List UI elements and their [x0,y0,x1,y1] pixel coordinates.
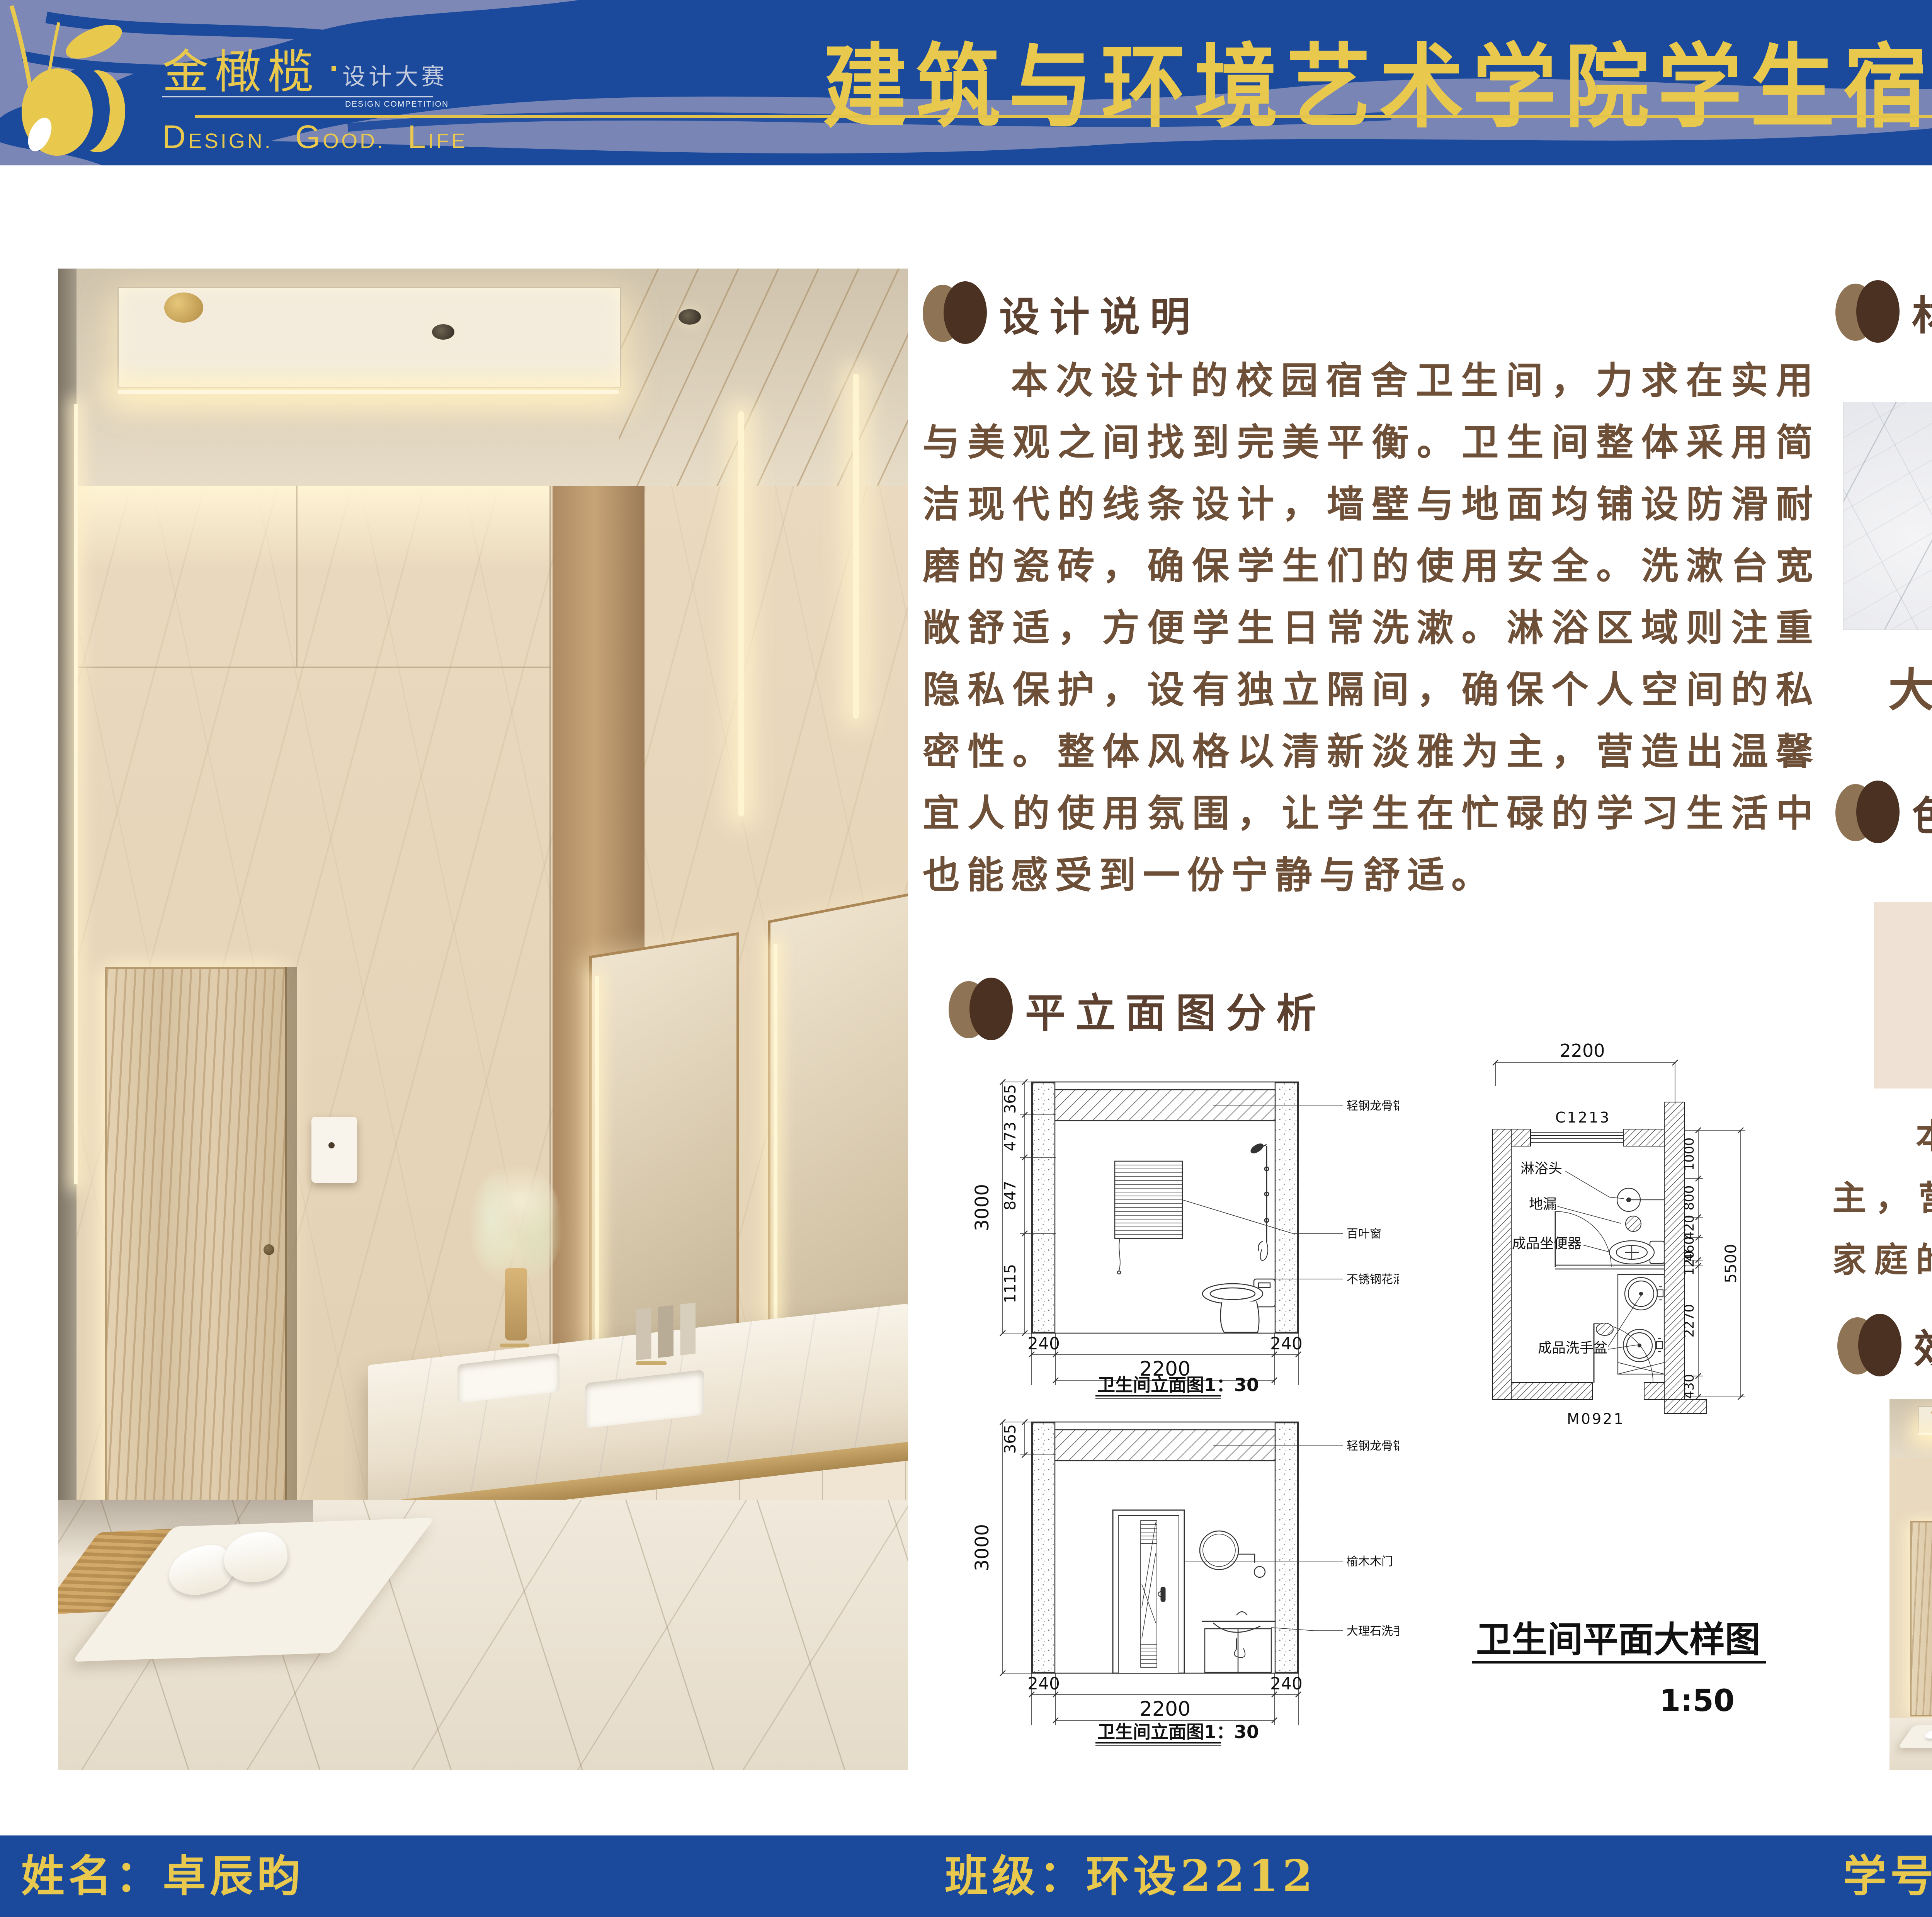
photo-spotlight [432,324,454,340]
render1-door [1910,1521,1932,1716]
render1-led-strip [1918,1433,1932,1435]
section-render-display: 效果图展示 [1837,1314,1932,1378]
student-id: 学号：202240348 [1843,1835,1932,1917]
elevation1-title: 卫生间立面图1：30 [1095,1374,1259,1399]
tagline-word-design: Design. [162,118,273,156]
poster-canvas: 金橄榄 · 设计大赛 DESIGN COMPETITION Design. Go… [0,0,1932,1917]
photo-paper-holder [311,1117,357,1183]
double-ellipse-icon [1835,280,1902,344]
student-class: 班级：环设2212 [945,1835,1316,1917]
svg-text:5500: 5500 [1722,1244,1740,1283]
photo-cove-light [58,486,551,569]
plan-shower-head [1617,1188,1664,1211]
svg-text:1:50: 1:50 [1660,1684,1735,1718]
svg-text:淋浴头: 淋浴头 [1520,1161,1562,1177]
brand-name: 金橄榄 [162,34,320,101]
section-material-analysis: 材质分析 [1835,280,1932,344]
design-description-text: 本次设计的校园宿舍卫生间，力求在实用与美观之间找到完美平衡。卫生间整体采用简洁现… [923,350,1820,906]
svg-text:3000: 3000 [971,1184,993,1231]
photo-wall-light-strip [853,374,859,719]
elevation1-louver-window [1115,1161,1182,1274]
elevation1-toilet [1202,1279,1275,1332]
svg-text:473: 473 [1002,1122,1019,1151]
svg-text:3000: 3000 [971,1524,993,1571]
svg-text:800: 800 [1682,1186,1697,1211]
brand-tagline: Design. Good. Life [162,118,468,156]
svg-text:430: 430 [1682,1374,1697,1399]
section-heading: 设计说明 [999,284,1200,342]
svg-text:2200: 2200 [1139,1698,1190,1721]
svg-text:240: 240 [1270,1674,1303,1694]
elevation2-title: 卫生间立面图1：30 [1095,1721,1259,1746]
photo-left-light-strip [74,404,78,1184]
elevation-drawing-1: 3000 365 473 847 1115 240 240 2200 轻钢龙骨铝… [966,1067,1399,1403]
brand-separator-dot: · [329,49,340,88]
double-ellipse-icon [1837,1314,1904,1378]
photo-spotlight [679,309,701,325]
photo-wall-seam [58,667,551,668]
elevation2-washbasin [1202,1612,1275,1672]
svg-text:不锈钢花洒: 不锈钢花洒 [1347,1273,1399,1286]
svg-text:2270: 2270 [1682,1304,1697,1338]
plan-toilet [1609,1241,1664,1264]
svg-text:卫生间立面图1：30: 卫生间立面图1：30 [1097,1374,1259,1395]
photo-paper-holder-knob [328,1142,335,1148]
section-plan-analysis: 平立面图分析 [949,978,1327,1041]
svg-text:1000: 1000 [1682,1138,1697,1171]
svg-text:成品坐便器: 成品坐便器 [1512,1236,1582,1252]
svg-text:C1213: C1213 [1555,1109,1611,1126]
svg-text:卫生间立面图1：30: 卫生间立面图1：30 [1097,1721,1259,1742]
section-heading: 效果图展示 [1914,1317,1932,1375]
photo-faucet [636,1361,667,1365]
svg-text:365: 365 [1002,1424,1019,1454]
photo-door-jamb [285,967,297,1590]
section-design-description: 设计说明 [923,281,1200,345]
plan-fixture-labels: C1213 M0921 淋浴头 地漏 成品坐便器 成品洗手盆 [1512,1109,1641,1427]
svg-text:365: 365 [1002,1084,1019,1114]
tagline-word-life: Life [408,118,468,156]
material-swatch-marble [1843,402,1932,630]
photo-wall-light-strip [738,411,744,816]
photo-toiletry-bottles [636,1300,721,1360]
svg-text:地漏: 地漏 [1529,1196,1557,1212]
section-heading: 材质分析 [1912,283,1932,341]
elevation2-door [1113,1510,1184,1673]
photo-wall-seam [296,486,298,666]
svg-text:420: 420 [1682,1215,1697,1240]
footer-bar: 姓名：卓辰昀 班级：环设2212 学号：202240348 [0,1835,1932,1917]
svg-text:1115: 1115 [1002,1264,1019,1303]
elevation1-shower [1250,1142,1269,1260]
photo-ceiling-trim [619,269,908,486]
color-analysis-text: 本次设计的校园宿舍卫生间，以暖色调为主，营造出温馨的宿舍环境，给予学生们一种家庭… [1832,1105,1932,1291]
competition-title: 建筑与环境艺术学院学生宿舍卫生间设计大赛 [823,13,1932,145]
svg-text:百叶窗: 百叶窗 [1347,1227,1381,1241]
material-label: 大理石 [1843,653,1932,719]
svg-text:成品洗手盆: 成品洗手盆 [1538,1340,1607,1356]
main-bathroom-photo [58,269,908,1770]
svg-text:卫生间平面大样图: 卫生间平面大样图 [1476,1619,1760,1660]
plan-right-dimension-labels: 1000 800 420 460 120 2270 430 5500 [1682,1138,1740,1399]
double-ellipse-icon [949,978,1015,1041]
color-swatch [1874,902,1932,1089]
header-banner: 金橄榄 · 设计大赛 DESIGN COMPETITION Design. Go… [0,0,1932,165]
section-color-analysis: 色彩分析 [1835,781,1932,844]
section-heading: 色彩分析 [1912,783,1932,842]
photo-gold-ceiling-lamp [164,293,203,323]
plan-top-dim-label: 2200 [1560,1040,1605,1061]
double-ellipse-icon [923,281,989,345]
double-ellipse-icon [1835,781,1902,844]
plan-title: 卫生间平面大样图 1:50 [1472,1619,1766,1718]
plan-walls [1493,1102,1707,1414]
tagline-word-good: Good. [295,118,385,156]
photo-faucet [500,1344,529,1347]
plan-vanity-basins [1596,1274,1664,1374]
svg-text:M0921: M0921 [1567,1410,1625,1427]
render1-ceiling-tray [1918,1406,1932,1434]
photo-led-strip [117,390,619,394]
plan-drawing: 2200 [1428,1036,1776,1731]
section-heading: 平立面图分析 [1025,980,1327,1039]
svg-text:847: 847 [1002,1181,1019,1210]
svg-text:240: 240 [1027,1674,1060,1694]
svg-text:120: 120 [1682,1251,1697,1276]
brand-subtitle: 设计大赛 [342,58,447,92]
student-name: 姓名：卓辰昀 [21,1835,304,1917]
plan-floor-drain [1626,1216,1641,1232]
brand-subtitle-en: DESIGN COMPETITION [345,100,449,109]
title-underline [195,115,1932,118]
svg-text:轻钢龙骨铝扣板吊顶: 轻钢龙骨铝扣板吊顶 [1347,1439,1399,1453]
photo-vase [505,1268,527,1340]
elevation-drawing-2: 3000 365 240 240 2200 轻钢龙骨铝扣板吊顶 榆木木门 大理石… [966,1407,1399,1750]
brand-divider-line [162,96,433,97]
svg-text:240: 240 [1270,1334,1303,1354]
render-photo-warm-bathroom [1889,1399,1932,1770]
svg-text:大理石洗手台: 大理石洗手台 [1347,1624,1399,1638]
svg-text:轻钢龙骨铝扣板吊顶: 轻钢龙骨铝扣板吊顶 [1347,1099,1399,1113]
elevation2-mirror [1200,1531,1265,1577]
svg-text:240: 240 [1027,1334,1060,1354]
svg-text:榆木木门: 榆木木门 [1347,1555,1393,1568]
